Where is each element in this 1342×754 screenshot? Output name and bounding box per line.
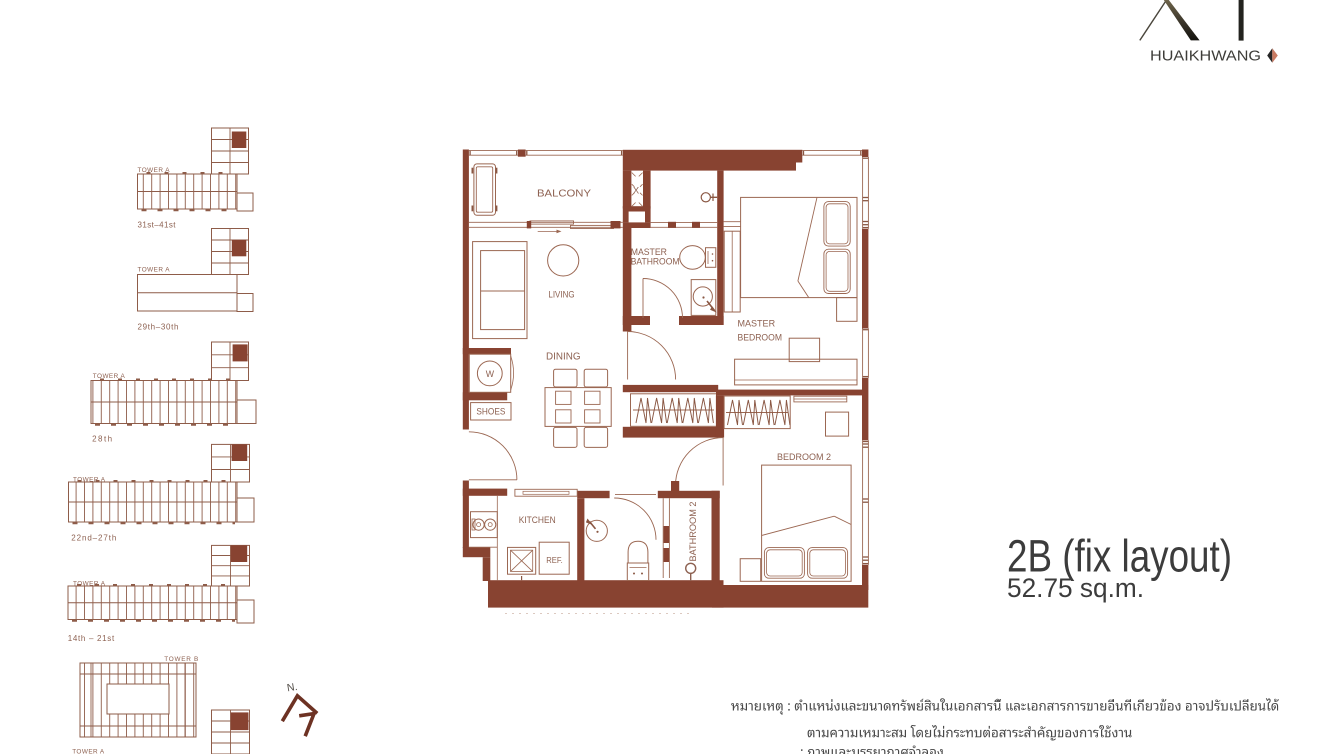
svg-text:HUAIKHWANG: HUAIKHWANG	[1150, 48, 1261, 65]
svg-text:W: W	[486, 369, 495, 379]
svg-text:MASTER: MASTER	[738, 318, 776, 328]
svg-text:BEDROOM: BEDROOM	[738, 332, 783, 342]
svg-text:29th–30th: 29th–30th	[138, 323, 179, 332]
svg-text:TOWER A: TOWER A	[138, 267, 171, 274]
svg-text:BATHROOM 2: BATHROOM 2	[688, 501, 698, 561]
svg-text:X: X	[633, 186, 639, 196]
svg-text:N.: N.	[286, 681, 298, 694]
svg-text:BALCONY: BALCONY	[537, 187, 591, 199]
svg-text:BEDROOM 2: BEDROOM 2	[777, 452, 831, 462]
svg-text:SHOES: SHOES	[476, 407, 505, 417]
svg-text:52.75 sq.m.: 52.75 sq.m.	[1007, 573, 1144, 603]
svg-text:BATHROOM: BATHROOM	[631, 257, 680, 267]
svg-text:22nd–27th: 22nd–27th	[71, 534, 116, 543]
svg-text:TOWER B: TOWER B	[164, 656, 198, 663]
svg-text:LIVING: LIVING	[548, 289, 574, 299]
svg-text:31st–41st: 31st–41st	[138, 221, 177, 230]
svg-text:28th: 28th	[92, 435, 112, 444]
svg-text:14th – 21st: 14th – 21st	[68, 634, 115, 643]
svg-text:REF.: REF.	[546, 555, 563, 565]
svg-text:TOWER A: TOWER A	[72, 749, 105, 754]
svg-text:DINING: DINING	[546, 351, 581, 362]
svg-text:KITCHEN: KITCHEN	[519, 515, 556, 525]
svg-text:MASTER: MASTER	[631, 247, 667, 257]
